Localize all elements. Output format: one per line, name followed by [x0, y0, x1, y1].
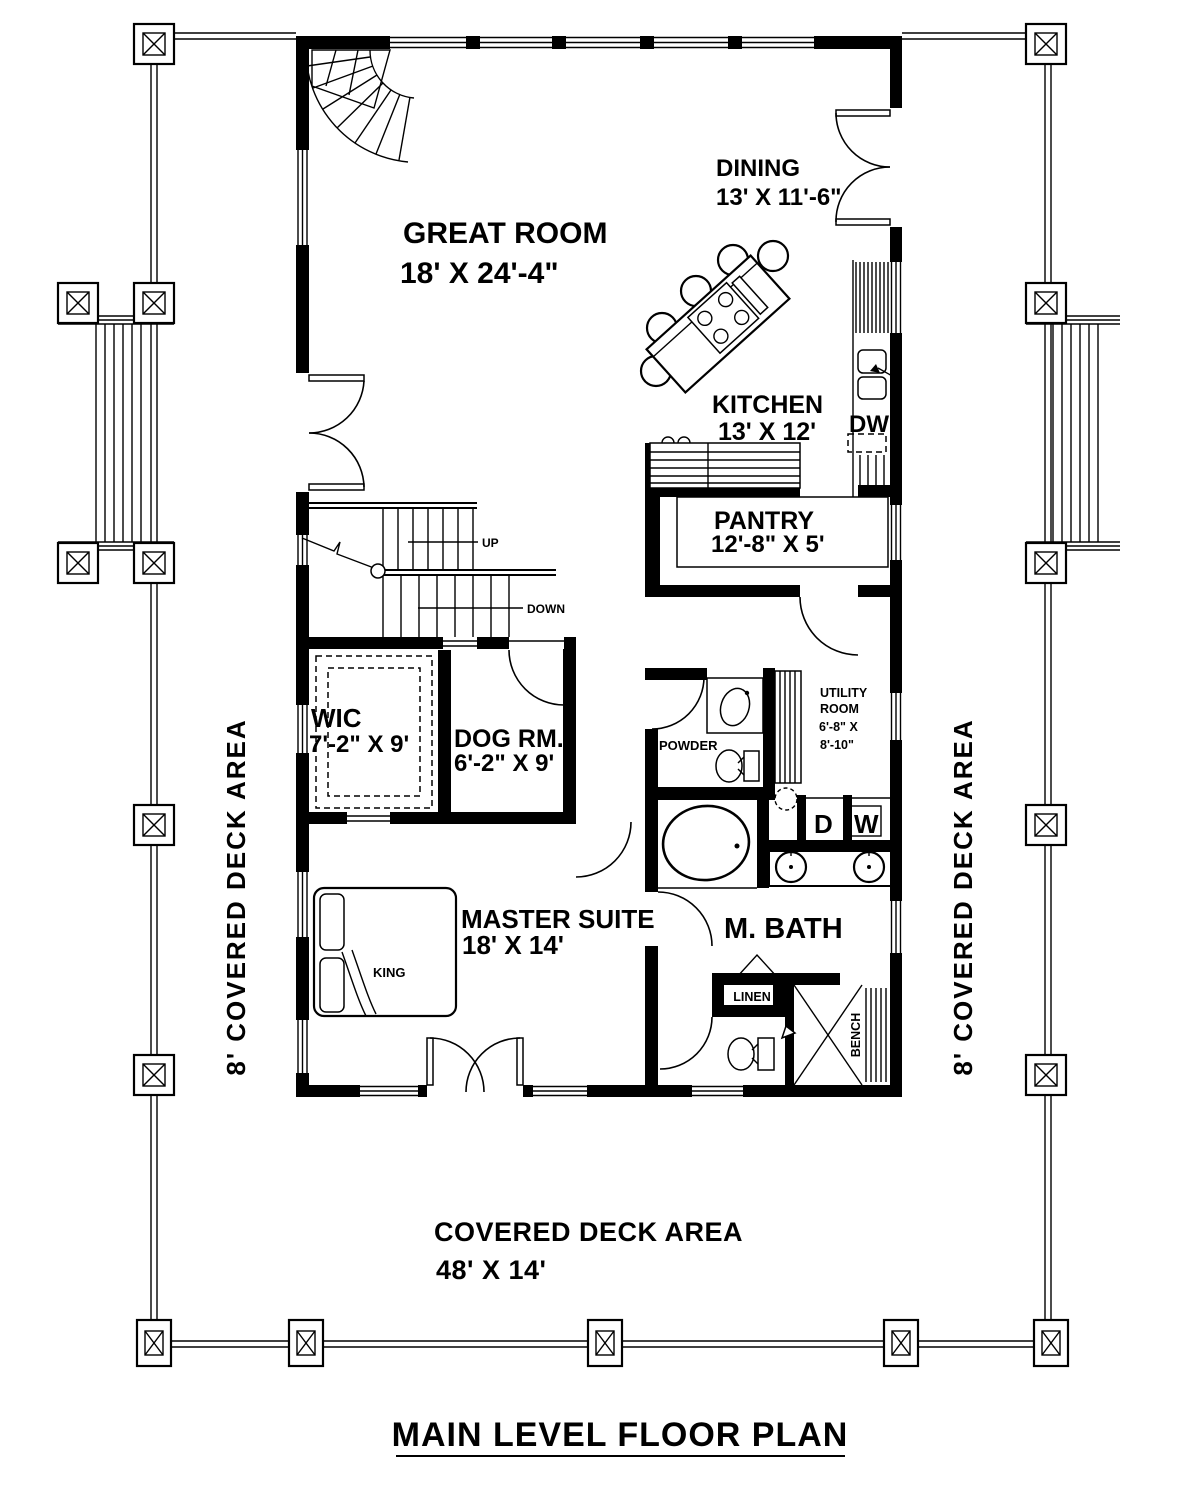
deck-post	[134, 805, 174, 845]
deck-post	[1026, 1055, 1066, 1095]
master-suite-dims: 18' X 14'	[462, 930, 564, 960]
floor-plan: GREAT ROOM 18' X 24'-4" DINING 13' X 11'…	[0, 0, 1200, 1500]
deck-post	[58, 283, 98, 323]
pillow	[320, 894, 344, 950]
king-bed	[314, 888, 456, 1016]
wic-label: WIC	[311, 703, 362, 733]
deck-post	[134, 24, 174, 64]
wic-dims: 7'-2" X 9'	[309, 731, 409, 758]
utility-label-1: UTILITY	[820, 686, 868, 700]
dryer-label: D	[814, 809, 833, 839]
bar-stool	[758, 241, 788, 271]
utility-dims-1: 6'-8" X	[819, 720, 858, 734]
bench-label: BENCH	[849, 1013, 863, 1057]
king-bed-label: KING	[373, 965, 406, 980]
right-deck-label: 8' COVERED DECK AREA	[948, 718, 978, 1075]
dog-room-label: DOG RM.	[454, 725, 564, 753]
bottom-deck-label: COVERED DECK AREA	[434, 1217, 743, 1247]
deck-post	[1026, 24, 1066, 64]
dining-door-opening	[890, 108, 902, 227]
water-heater	[775, 788, 797, 810]
deck-post	[1034, 1320, 1068, 1366]
linen-label: LINEN	[733, 990, 771, 1004]
deck-post	[134, 543, 174, 583]
deck-post	[137, 1320, 171, 1366]
deck-post	[289, 1320, 323, 1366]
bath-toilet	[728, 1038, 774, 1070]
stairs-up-label: UP	[482, 536, 499, 550]
pillow	[320, 958, 344, 1012]
kitchen-label: KITCHEN	[712, 391, 823, 419]
deck-post	[1026, 543, 1066, 583]
bottom-deck-dims: 48' X 14'	[436, 1255, 546, 1285]
utility-dims-2: 8'-10"	[820, 738, 854, 752]
pantry-dims: 12'-8" X 5'	[711, 531, 825, 558]
great-room-label: GREAT ROOM	[403, 217, 607, 250]
utility-hatch	[775, 671, 801, 783]
deck-post	[134, 283, 174, 323]
stairs-down-label: DOWN	[527, 602, 565, 616]
page-title: MAIN LEVEL FLOOR PLAN	[392, 1416, 849, 1454]
deck-post	[588, 1320, 622, 1366]
window	[390, 36, 814, 49]
great-room-dims: 18' X 24'-4"	[400, 257, 559, 290]
washer-label: W	[854, 809, 879, 839]
powder-label: POWDER	[659, 738, 718, 753]
deck-post	[134, 1055, 174, 1095]
dining-dims: 13' X 11'-6"	[716, 184, 842, 211]
deck-post	[1026, 283, 1066, 323]
deck-post	[1026, 805, 1066, 845]
powder-toilet	[716, 750, 759, 782]
dog-room-dims: 6'-2" X 9'	[454, 750, 554, 777]
left-deck-label: 8' COVERED DECK AREA	[221, 718, 251, 1075]
deck-post	[884, 1320, 918, 1366]
utility-label-2: ROOM	[820, 702, 859, 716]
master-door-opening	[427, 1085, 523, 1097]
deck-post	[58, 543, 98, 583]
floor-plan-drawing: GREAT ROOM 18' X 24'-4" DINING 13' X 11'…	[0, 0, 1200, 1500]
great-room-door-opening	[296, 373, 309, 492]
kitchen-dims: 13' X 12'	[718, 418, 816, 446]
powder-fixtures	[707, 678, 763, 782]
master-bath-label: M. BATH	[724, 913, 843, 945]
dishwasher-label: DW	[849, 411, 889, 438]
dining-label: DINING	[716, 155, 800, 182]
